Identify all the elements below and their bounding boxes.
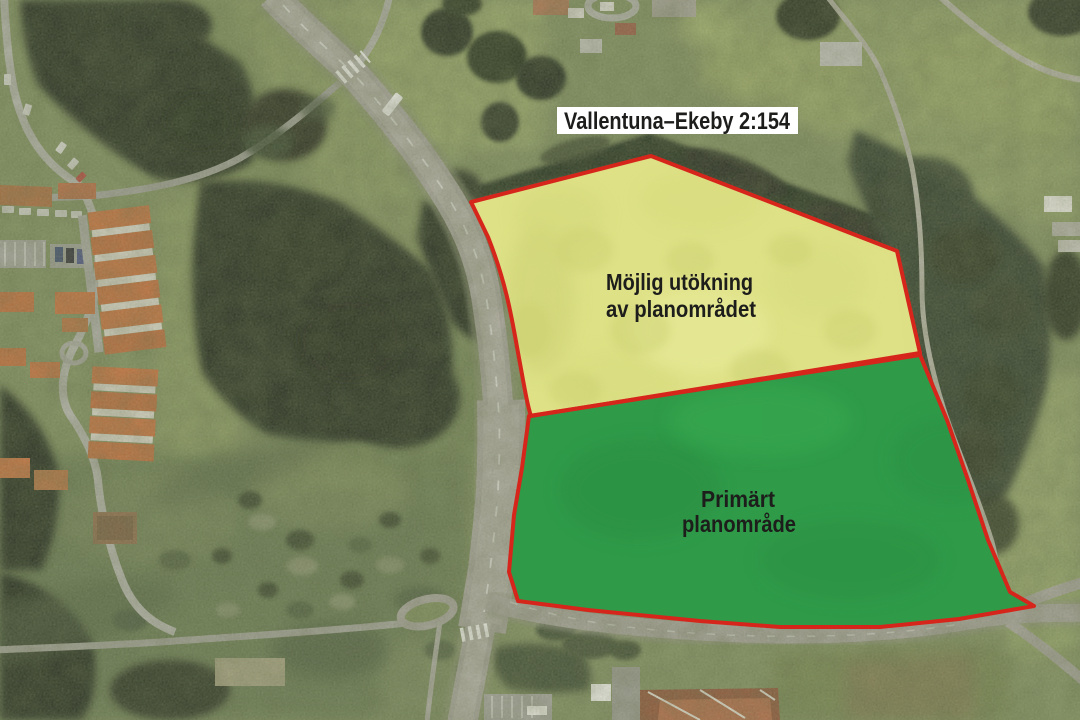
svg-text:Möjlig utökning: Möjlig utökning [606,269,753,295]
svg-text:Vallentuna–Ekeby 2:154: Vallentuna–Ekeby 2:154 [564,108,791,135]
svg-text:av planområdet: av planområdet [606,296,756,322]
svg-text:planområde: planområde [682,511,796,537]
svg-text:Primärt: Primärt [701,486,775,512]
